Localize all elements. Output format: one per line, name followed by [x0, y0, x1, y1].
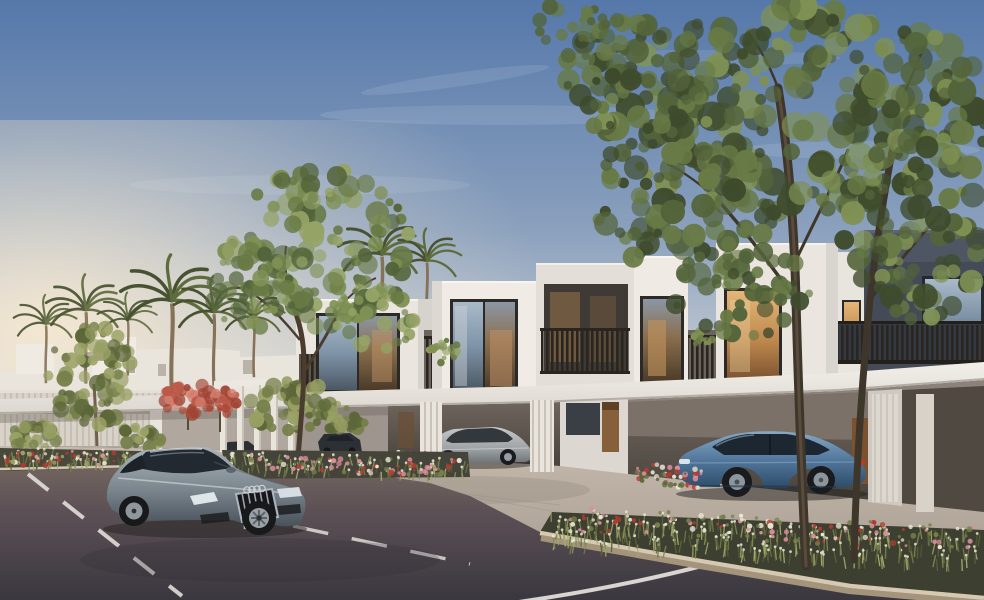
coupe-mirror [226, 467, 236, 473]
carport-far-opening [902, 386, 984, 514]
bluecar-headlight [679, 459, 690, 464]
unit-f-railing [838, 325, 984, 363]
render-canvas [0, 0, 984, 600]
unit-c-railing [540, 330, 630, 374]
property-render-image [0, 0, 984, 600]
unit-b-upper [432, 281, 536, 393]
slat-pillar-3 [916, 394, 934, 512]
slat-pillar-2 [530, 400, 554, 472]
end-wall-window [566, 403, 600, 435]
unit-c-balcony [536, 263, 634, 393]
